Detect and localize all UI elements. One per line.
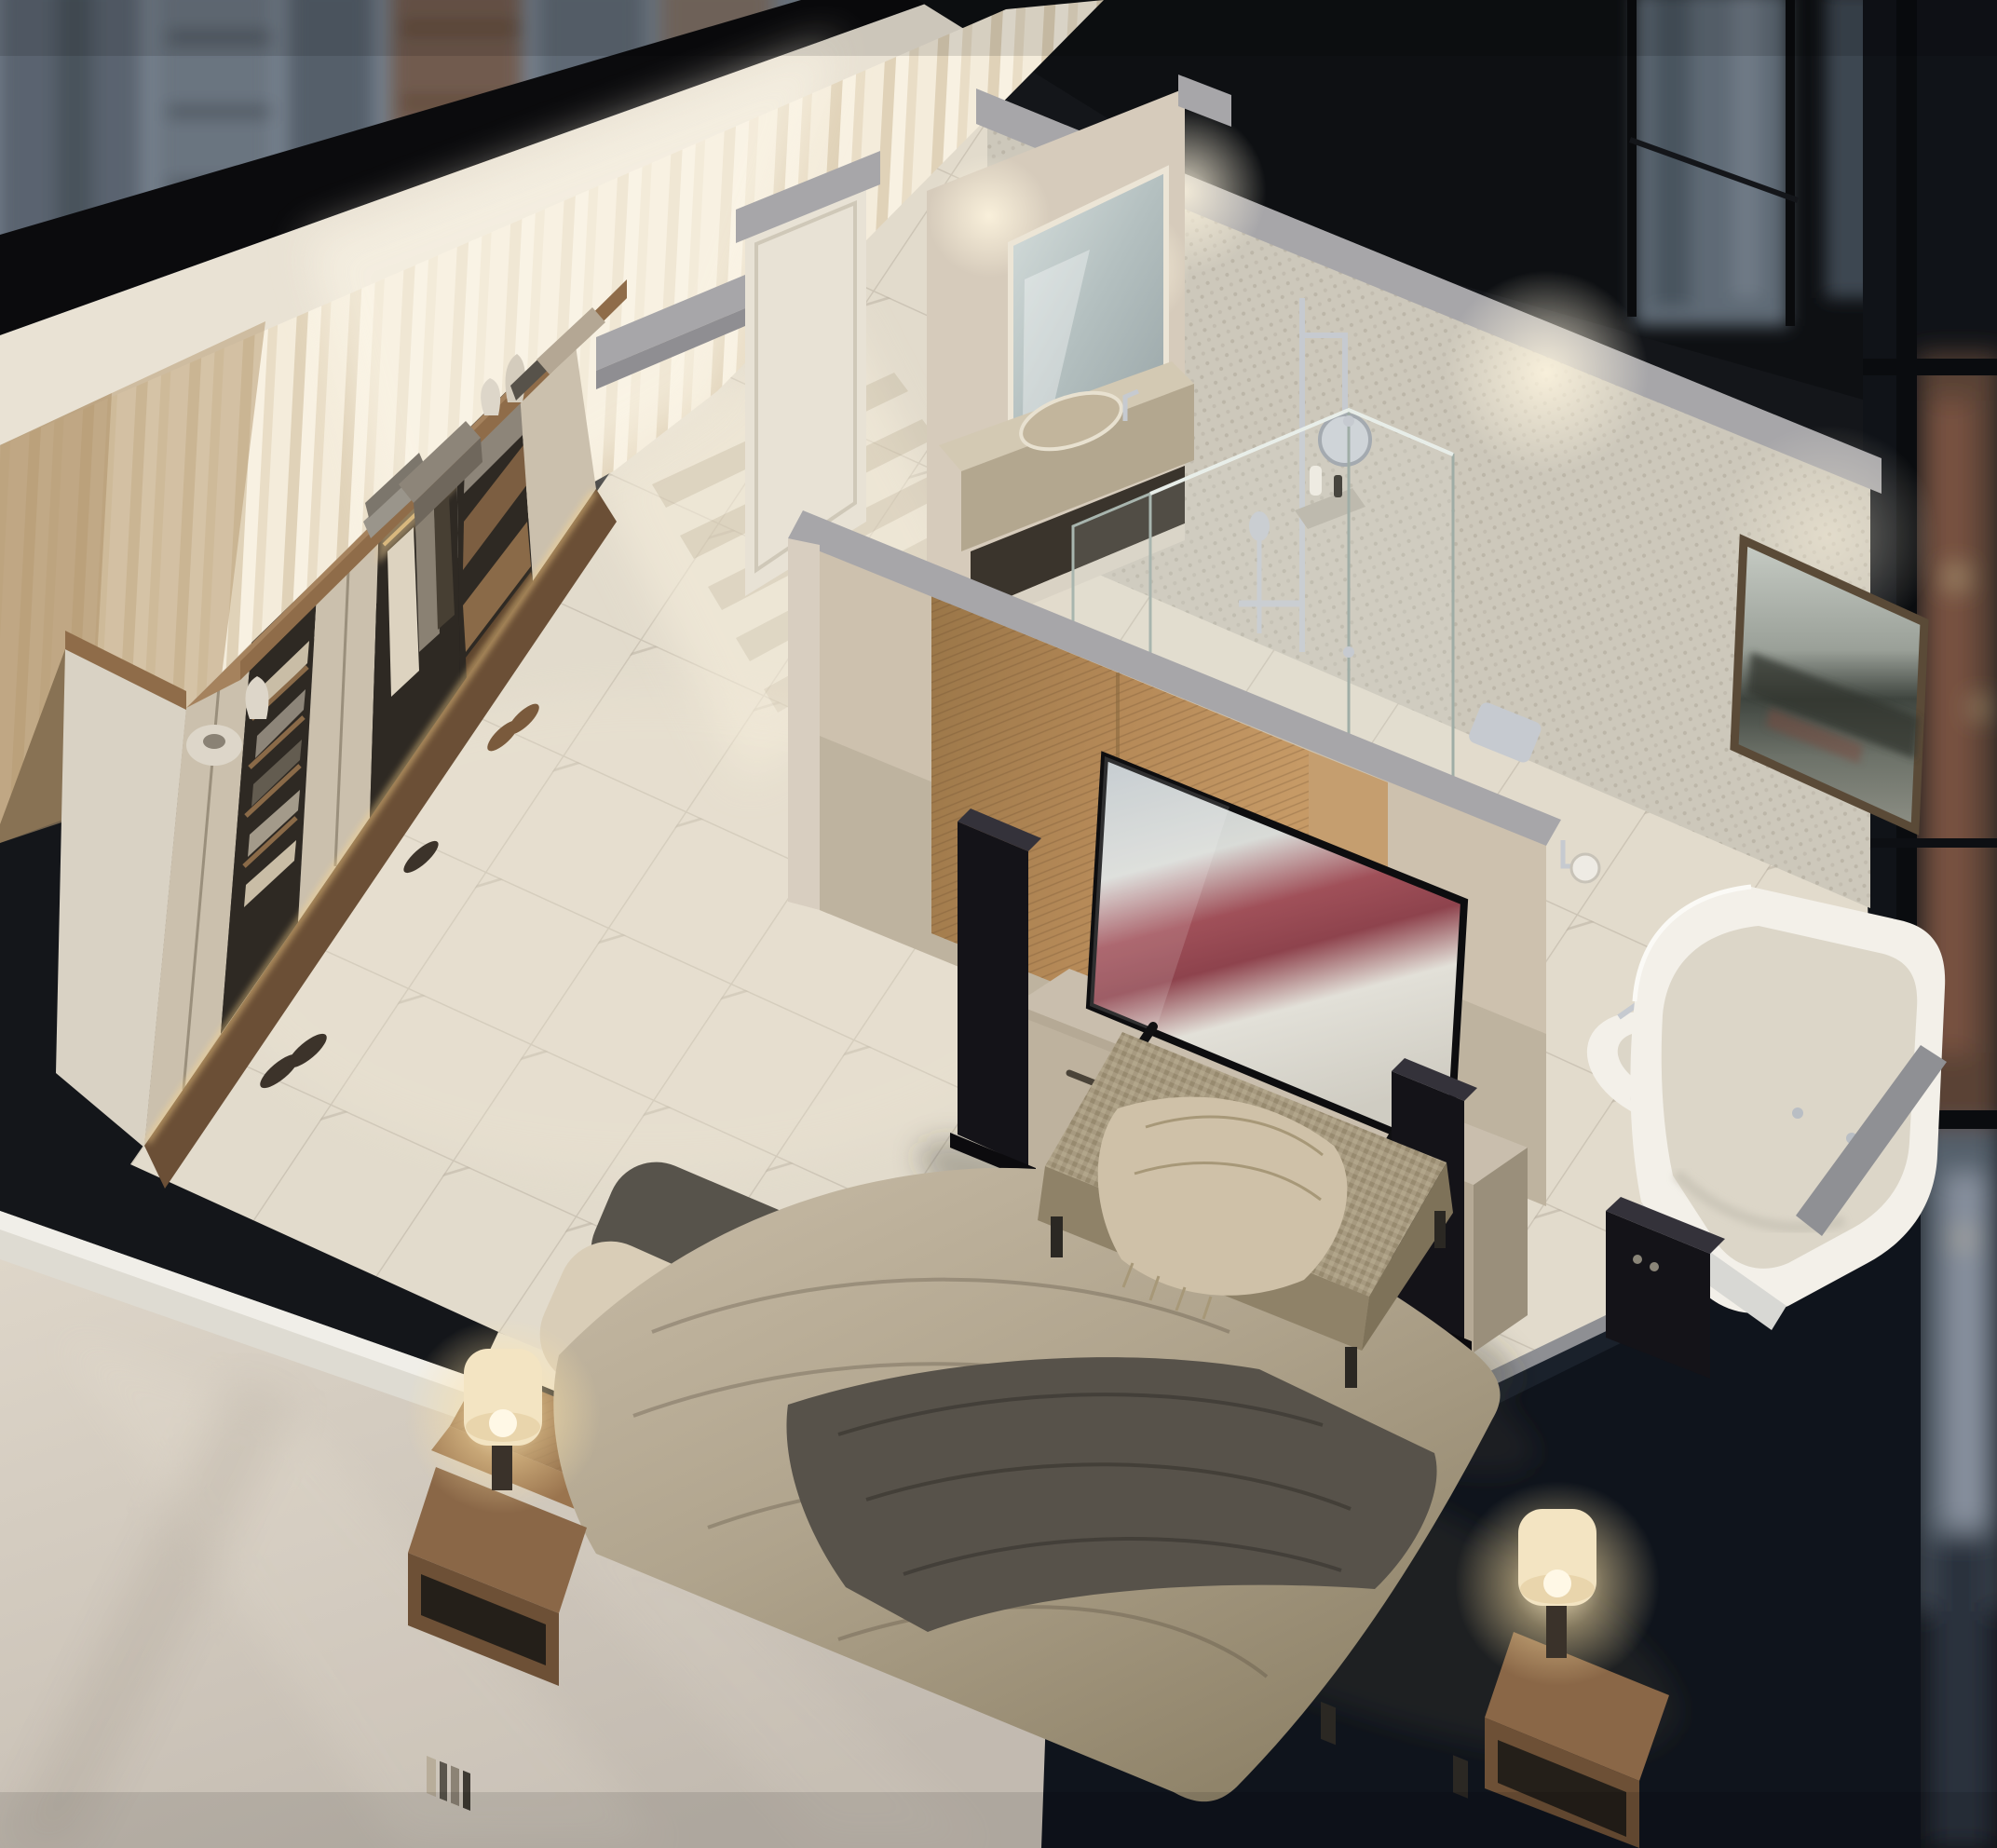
lamp-right-bulb xyxy=(1543,1569,1571,1597)
subwoofer-knob-1 xyxy=(1633,1255,1642,1264)
isometric-bedroom-render xyxy=(0,0,1997,1848)
speaker-left-front xyxy=(958,822,1028,1166)
glass-hinge-1 xyxy=(1343,415,1354,427)
render-stage xyxy=(0,0,1997,1848)
lamp-right-stem xyxy=(1546,1598,1567,1658)
speaker-left xyxy=(950,808,1041,1183)
table-lamp-left xyxy=(405,1318,601,1514)
spotlight-glow-2 xyxy=(1444,270,1649,475)
lamp-left-bulb xyxy=(489,1409,517,1437)
glass-hinge-2 xyxy=(1343,646,1354,658)
partition-end-face xyxy=(788,538,820,910)
tub-jet-1 xyxy=(1792,1107,1803,1119)
ring-vase-hole xyxy=(203,734,225,749)
subwoofer-knob-2 xyxy=(1650,1262,1659,1271)
table-lamp-right xyxy=(1455,1481,1660,1686)
